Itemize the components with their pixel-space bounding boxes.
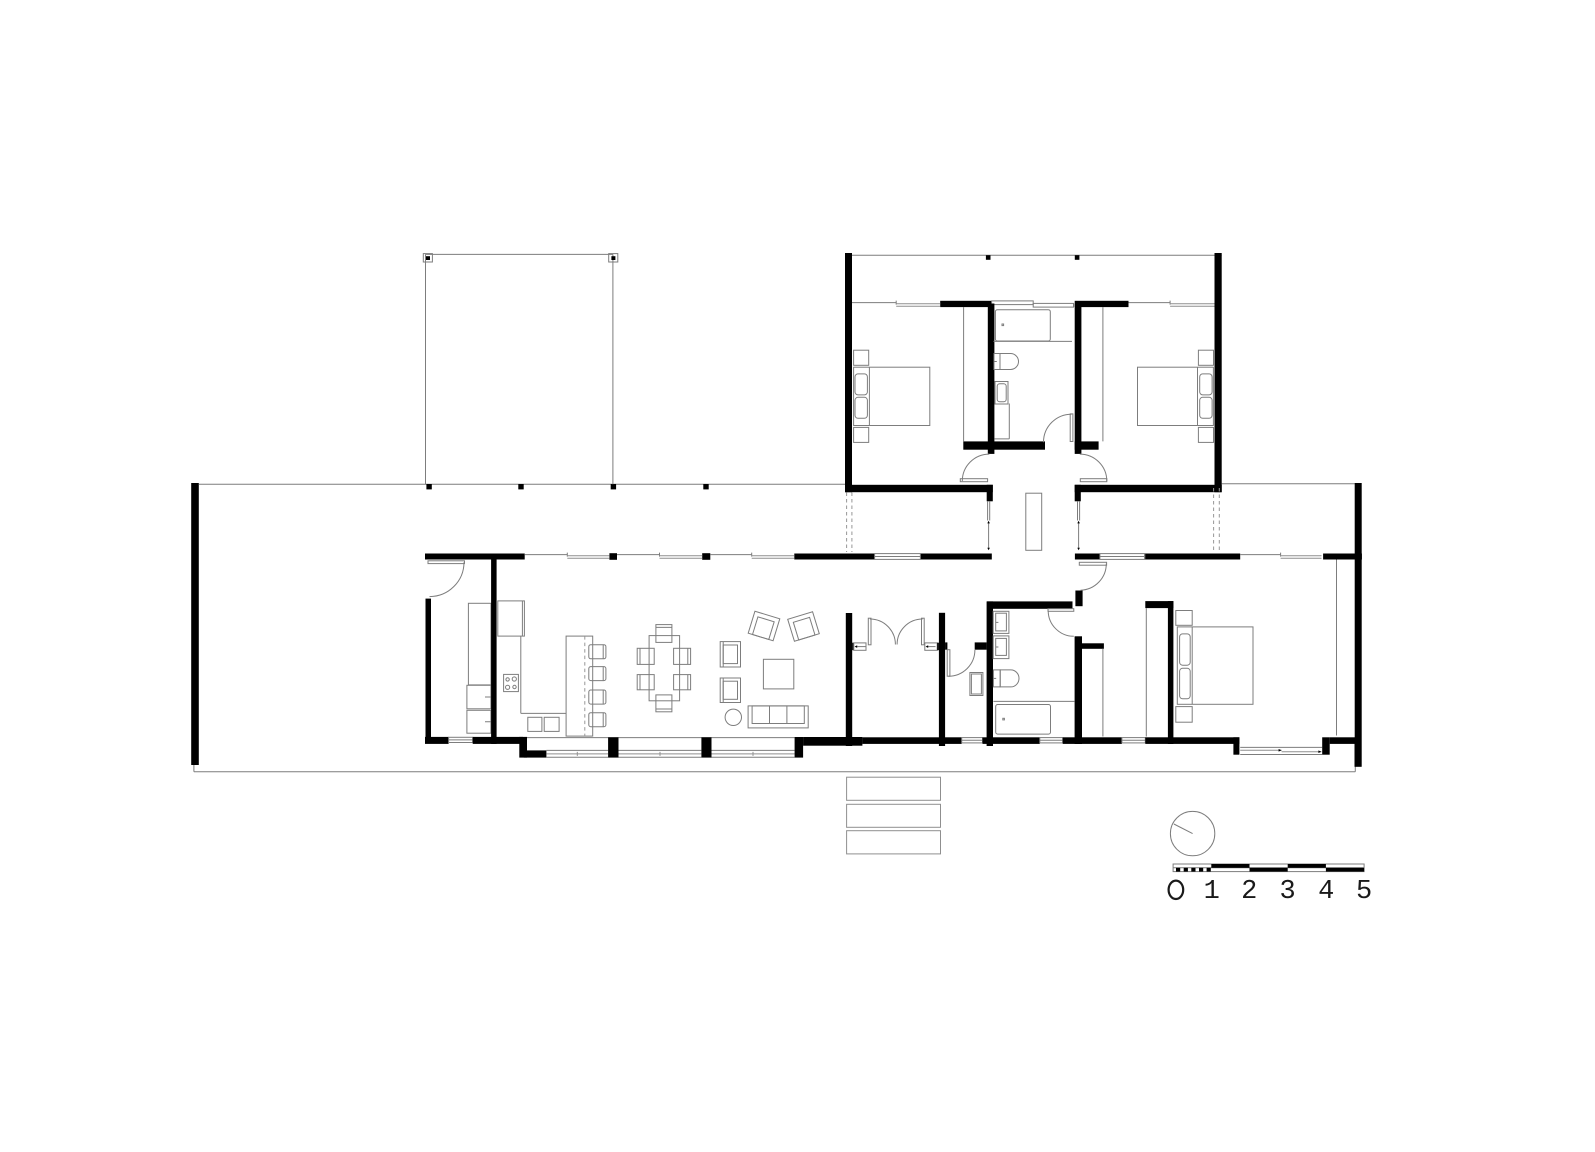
svg-text:2: 2 [1241,877,1257,907]
svg-text:1: 1 [1204,877,1220,907]
svg-text:3: 3 [1279,877,1295,907]
svg-text:5: 5 [1356,877,1372,907]
svg-text:4: 4 [1318,877,1334,907]
